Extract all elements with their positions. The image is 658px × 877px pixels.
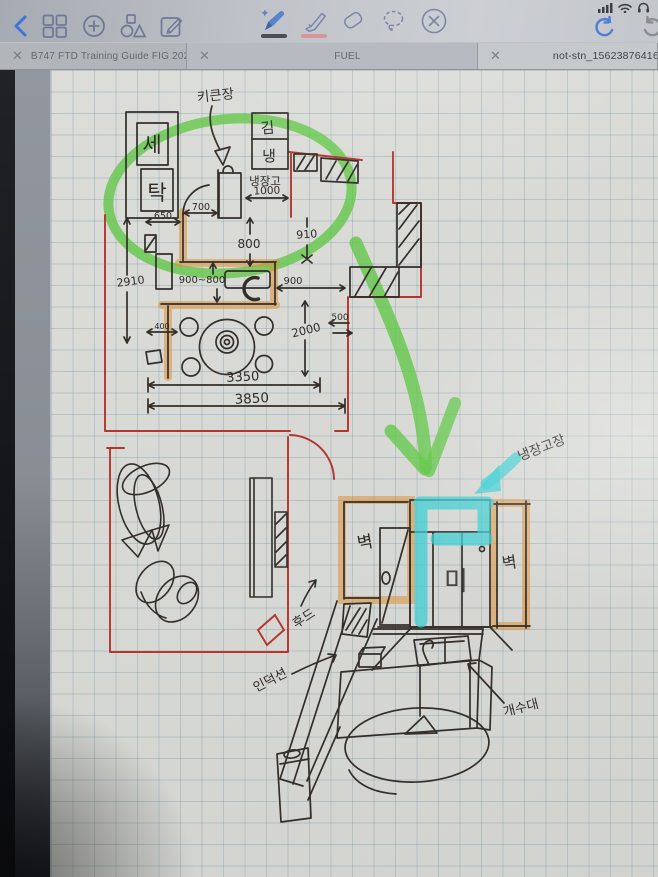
dim-2000 — [302, 301, 308, 376]
wall-hatch-strip — [275, 512, 287, 567]
history-group — [592, 16, 658, 40]
closet-divider — [378, 532, 492, 627]
drawing-tool-group — [260, 8, 448, 38]
lasso-tool[interactable] — [380, 8, 408, 32]
dim-text-650: 650 — [154, 211, 172, 222]
label-fridge-cabinet: 냉장고장 — [516, 432, 568, 465]
label-sink: 개수대 — [502, 697, 540, 720]
small-tilted-square — [146, 350, 162, 364]
no-drawing-icon — [420, 8, 448, 34]
bar-counter-diagonals — [280, 601, 377, 800]
label-wall-right: 벽 — [501, 552, 518, 573]
table-center — [225, 340, 230, 345]
highlighter-icon — [300, 8, 328, 32]
compose-icon[interactable] — [160, 14, 184, 38]
tab-close-icon[interactable]: ✕ — [187, 49, 218, 64]
highlighter-tool[interactable] — [300, 8, 328, 38]
chair-circle — [255, 317, 273, 335]
armchair-headrest — [118, 457, 174, 501]
fridge-box — [219, 173, 241, 218]
closet-knob — [480, 547, 485, 552]
lasso-icon — [381, 8, 407, 32]
pen-icon — [260, 8, 288, 32]
left-door — [380, 528, 410, 625]
red-door-arc — [290, 435, 334, 479]
label-hood: 후드 — [290, 606, 318, 632]
dim-text-3350: 3350 — [226, 369, 260, 386]
cellular-signal-icon — [598, 2, 613, 13]
tab-not-stn-active[interactable]: ✕ not-stn_156238764162 — [478, 43, 658, 69]
pen-tool[interactable] — [260, 8, 288, 38]
wall-box-left-ink — [344, 502, 408, 599]
tab-label: FUEL — [334, 51, 360, 62]
sink-callout-arrow — [468, 663, 504, 703]
back-icon[interactable] — [12, 14, 28, 38]
label-induction: 인덕션 — [251, 666, 290, 696]
green-arrowhead — [429, 403, 455, 471]
undo-icon[interactable] — [592, 16, 618, 40]
top-toolbar — [0, 0, 658, 42]
label-door-mi: 미 — [444, 567, 468, 597]
stool-connector — [141, 592, 166, 618]
label-washer-top: 세 — [142, 133, 161, 157]
dim-text-2910: 2910 — [116, 273, 145, 289]
label-washer-bottom: 탁 — [147, 181, 166, 205]
label-tall-cabinet: 키큰장 — [196, 86, 235, 106]
column-handle — [284, 749, 301, 759]
tab-label: B747 FTD Training Guide FIG 20200717 — [31, 51, 187, 62]
pages-grid-icon[interactable] — [42, 14, 68, 38]
dim-text-2000: 2000 — [290, 320, 322, 341]
eraser-tool[interactable] — [340, 8, 368, 32]
window-hatch-a — [294, 154, 317, 171]
eraser-icon — [341, 8, 367, 32]
red-diamond — [258, 615, 284, 645]
table-center — [221, 336, 234, 349]
tab-close-icon[interactable]: ✕ — [0, 49, 31, 64]
hood-callout-arrow — [301, 580, 316, 606]
label-kimchi-top: 김 — [260, 118, 275, 137]
dim-text-700: 700 — [192, 202, 210, 213]
dim-text-900: 900 — [283, 276, 302, 287]
highlighter-color-swatch — [301, 34, 327, 38]
add-page-icon[interactable] — [82, 14, 106, 38]
no-drawing-tool[interactable] — [420, 8, 448, 34]
small-hatched-box — [145, 235, 156, 252]
pen-color-swatch — [261, 34, 287, 38]
document-tabbar: ✕ B747 FTD Training Guide FIG 20200717 ✕… — [0, 42, 658, 70]
label-kimchi-bottom: 냉 — [262, 147, 276, 165]
dim-text-3850: 3850 — [234, 390, 269, 408]
status-bar — [598, 1, 650, 13]
nav-icon-group — [12, 14, 184, 38]
chair-circle — [182, 358, 200, 376]
living-room-ink — [110, 457, 316, 630]
armchair-back — [110, 459, 169, 548]
cyan-cabinet-highlight — [420, 503, 487, 621]
wall-hatch-vertical — [397, 203, 421, 267]
wifi-icon — [618, 2, 632, 13]
pedestal-table — [405, 665, 437, 734]
dim-text-500: 500 — [331, 313, 348, 323]
headphones-icon — [637, 2, 650, 13]
ipad-notes-app-screen: ✕ B747 FTD Training Guide FIG 20200717 ✕… — [0, 0, 658, 877]
dining-table — [200, 320, 255, 375]
table-sketch-extra — [349, 770, 396, 794]
cyan-arrowhead — [474, 465, 501, 494]
tv-cabinet — [250, 478, 272, 597]
label-wall-left: 벽 — [356, 532, 375, 554]
tab-fuel[interactable]: ✕ FUEL — [187, 43, 478, 69]
dim-text-800: 800 — [238, 237, 261, 251]
counter-back-edge — [373, 629, 483, 634]
left-door-knob — [382, 572, 390, 584]
green-ellipse-highlight — [101, 107, 360, 286]
table-center — [216, 331, 238, 353]
dim-text-910: 910 — [296, 227, 318, 241]
chair-circle — [180, 318, 198, 336]
tab-b747-ftd-training-guide[interactable]: ✕ B747 FTD Training Guide FIG 20200717 — [0, 43, 187, 69]
red-room-outline-living — [107, 437, 288, 652]
cyan-highlight-group — [420, 458, 516, 621]
bar-end-column — [277, 748, 311, 822]
tab-close-icon[interactable]: ✕ — [478, 49, 509, 64]
tab-label: not-stn_156238764162 — [553, 50, 658, 62]
note-canvas: 키큰장 세 탁 김 냉 냉장고 1000 700 650 800 910 291… — [0, 70, 658, 877]
shapes-icon[interactable] — [120, 14, 146, 38]
dim-text-900-800: 900~800 — [179, 275, 226, 286]
dim-text-400: 400 — [154, 322, 169, 331]
handwritten-sketch: 키큰장 세 탁 김 냉 냉장고 1000 700 650 800 910 291… — [0, 70, 658, 877]
dim-text-1000: 1000 — [253, 185, 280, 198]
round-table-top — [343, 704, 491, 785]
redo-icon[interactable] — [640, 16, 658, 40]
orange-wall-box-left — [342, 500, 411, 600]
